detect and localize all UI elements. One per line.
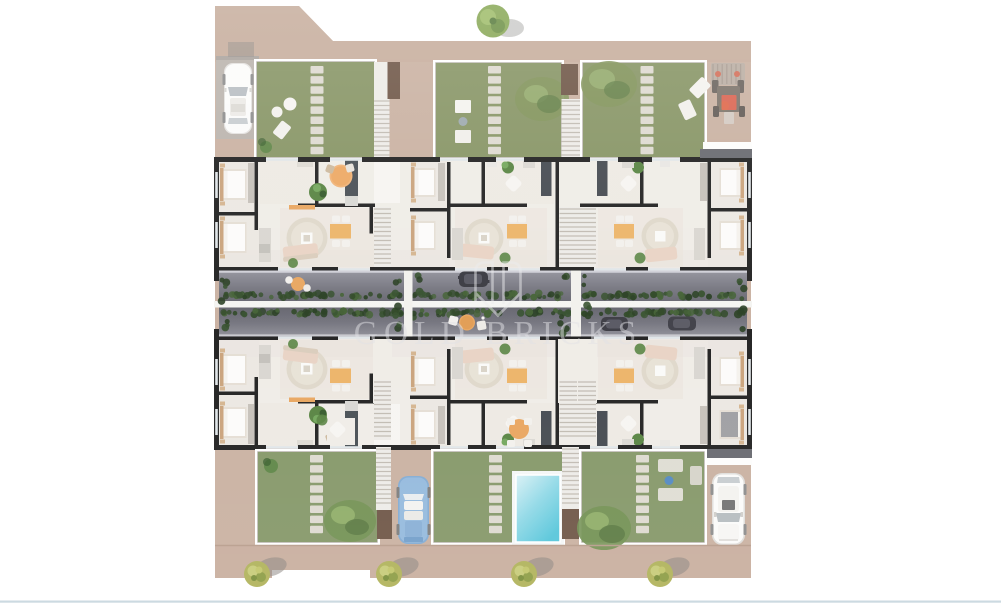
svg-text:GOLD BRICKS: GOLD BRICKS bbox=[354, 315, 642, 352]
